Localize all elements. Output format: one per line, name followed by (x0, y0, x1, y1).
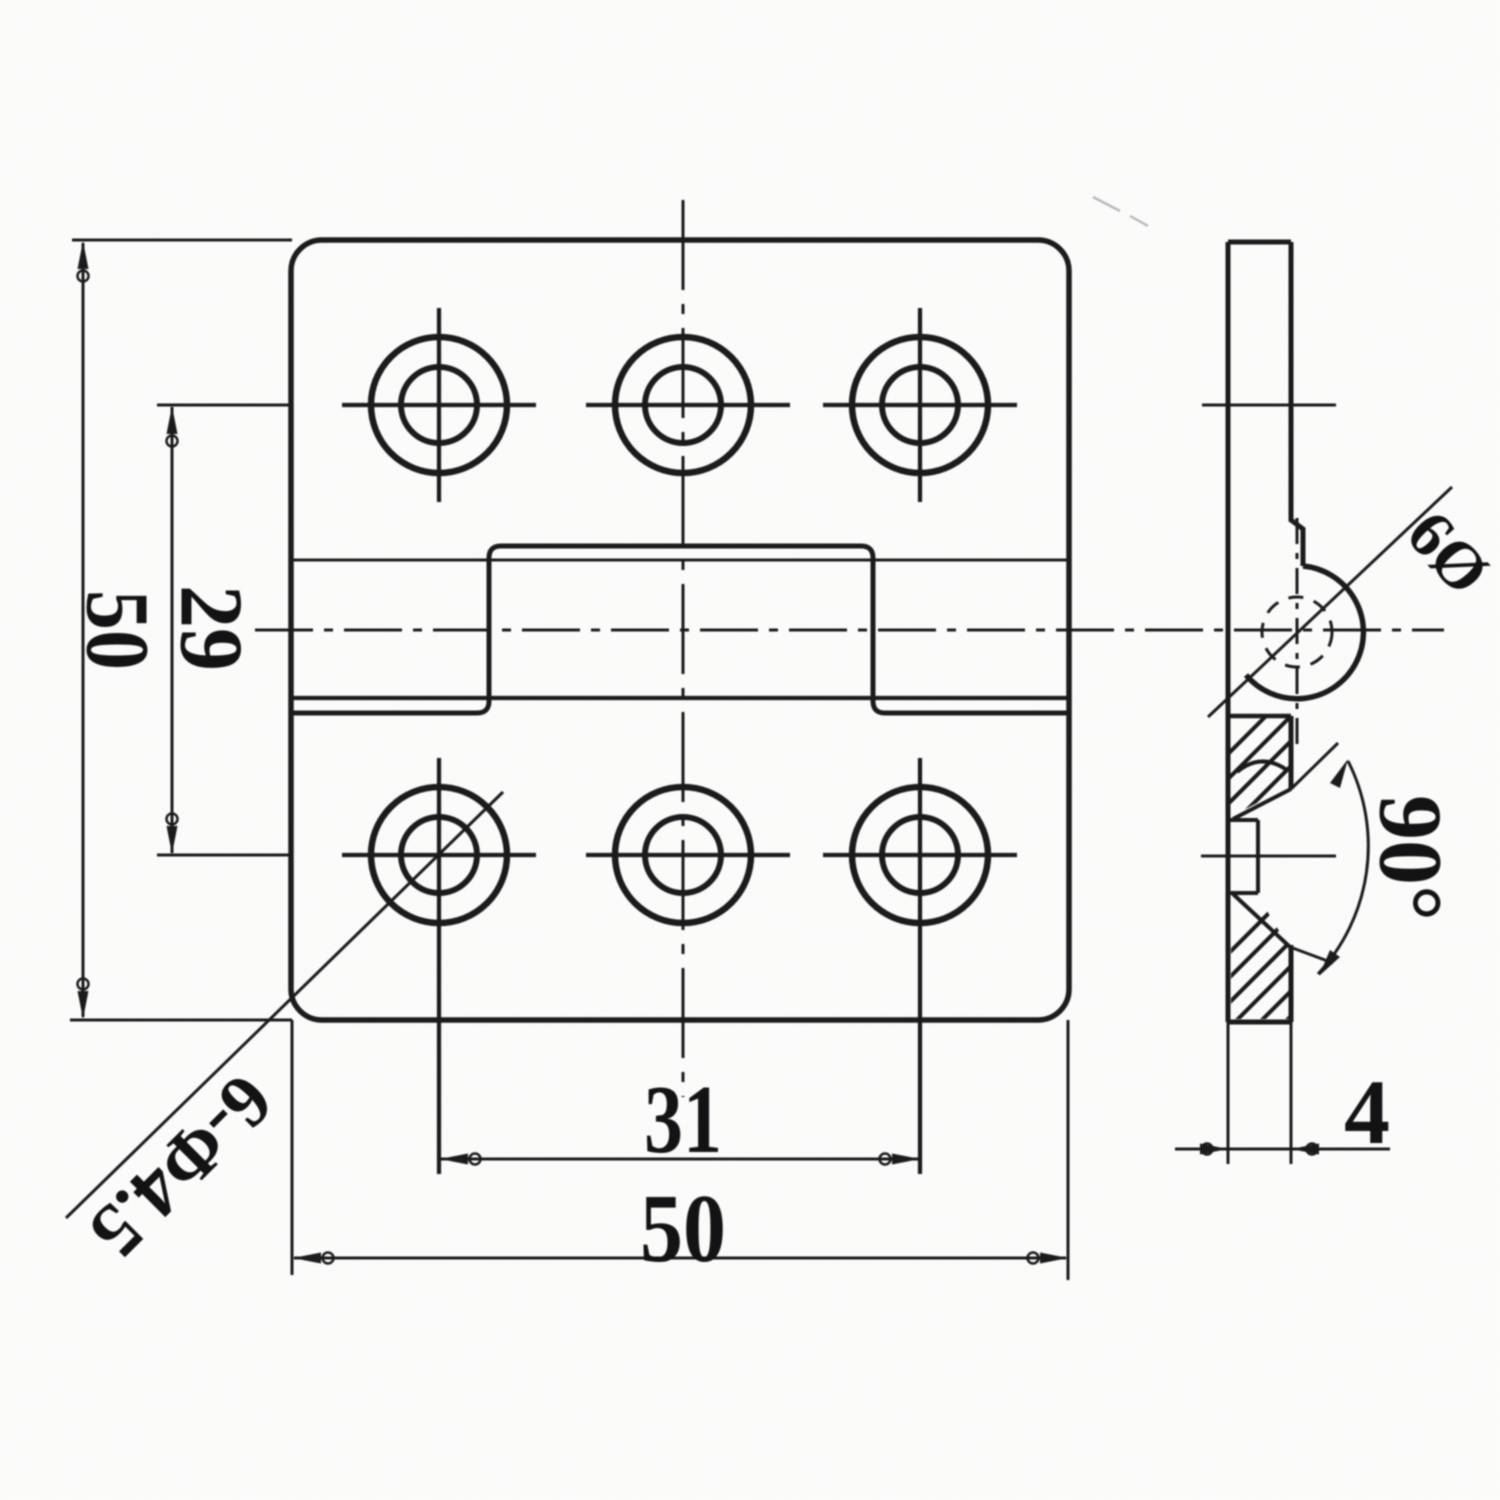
svg-text:50: 50 (68, 590, 167, 670)
svg-text:90°: 90° (1361, 795, 1460, 921)
svg-text:4: 4 (1344, 1061, 1390, 1163)
svg-text:50: 50 (640, 1175, 726, 1283)
svg-text:31: 31 (644, 1066, 722, 1174)
svg-text:29: 29 (162, 585, 261, 671)
